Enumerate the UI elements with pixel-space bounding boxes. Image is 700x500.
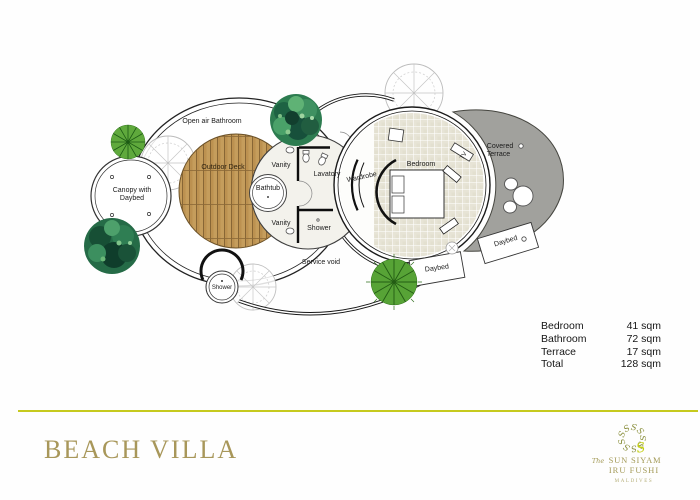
label-covered-terrace-line2: Terrace — [487, 151, 513, 159]
label-covered-terrace: Covered Terrace — [487, 143, 513, 159]
sun-swirl-icon: S S S S S S S S S S — [617, 423, 647, 457]
bush-icon — [270, 94, 322, 146]
label-bathtub: Bathtub — [256, 185, 280, 193]
bush-icon — [84, 218, 140, 274]
label-vanity-bottom: Vanity — [272, 220, 291, 228]
label-service-void: Service void — [302, 259, 340, 267]
area-value: 41 sqm — [605, 320, 661, 333]
area-table: Bedroom 41 sqm Bathroom 72 sqm Terrace 1… — [541, 320, 661, 371]
palm-tree-icon — [366, 254, 422, 310]
brochure-page: Open air Bathroom Outdoor Deck Canopy wi… — [0, 0, 700, 500]
area-label: Terrace — [541, 346, 605, 359]
area-value: 17 sqm — [605, 346, 661, 359]
label-vanity-top: Vanity — [272, 162, 291, 170]
area-label: Total — [541, 358, 605, 371]
resort-logo: S S S S S S S S S S The SUN SIYAM IRU FU… — [575, 412, 695, 496]
logo-brand-name: SUN SIYAM — [609, 455, 662, 465]
area-label: Bathroom — [541, 333, 605, 346]
label-bedroom: Bedroom — [407, 161, 435, 169]
label-open-air-bathroom: Open air Bathroom — [182, 118, 241, 126]
logo-prefix: The — [592, 457, 605, 465]
page-title: BEACH VILLA — [44, 435, 238, 465]
label-lavatory: Lavatory — [314, 171, 341, 179]
area-row-bathroom: Bathroom 72 sqm — [541, 333, 661, 346]
logo-resort-name: IRU FUSHI — [609, 465, 659, 475]
palm-tree-icon — [111, 125, 145, 159]
label-outdoor-deck: Outdoor Deck — [201, 164, 244, 172]
label-canopy-line1: Canopy with — [113, 187, 152, 195]
bedroom-circle — [334, 107, 490, 263]
area-label: Bedroom — [541, 320, 605, 333]
label-shower: Shower — [307, 225, 331, 233]
label-canopy-with-daybed: Canopy with Daybed — [113, 187, 152, 203]
label-covered-terrace-line1: Covered — [487, 143, 513, 151]
area-row-terrace: Terrace 17 sqm — [541, 346, 661, 359]
area-value: 72 sqm — [605, 333, 661, 346]
label-canopy-line2: Daybed — [113, 195, 152, 203]
label-outdoor-shower: Shower — [212, 284, 232, 292]
logo-country: MALDIVES — [615, 479, 654, 484]
area-row-bedroom: Bedroom 41 sqm — [541, 320, 661, 333]
area-value: 128 sqm — [605, 358, 661, 371]
area-row-total: Total 128 sqm — [541, 358, 661, 371]
